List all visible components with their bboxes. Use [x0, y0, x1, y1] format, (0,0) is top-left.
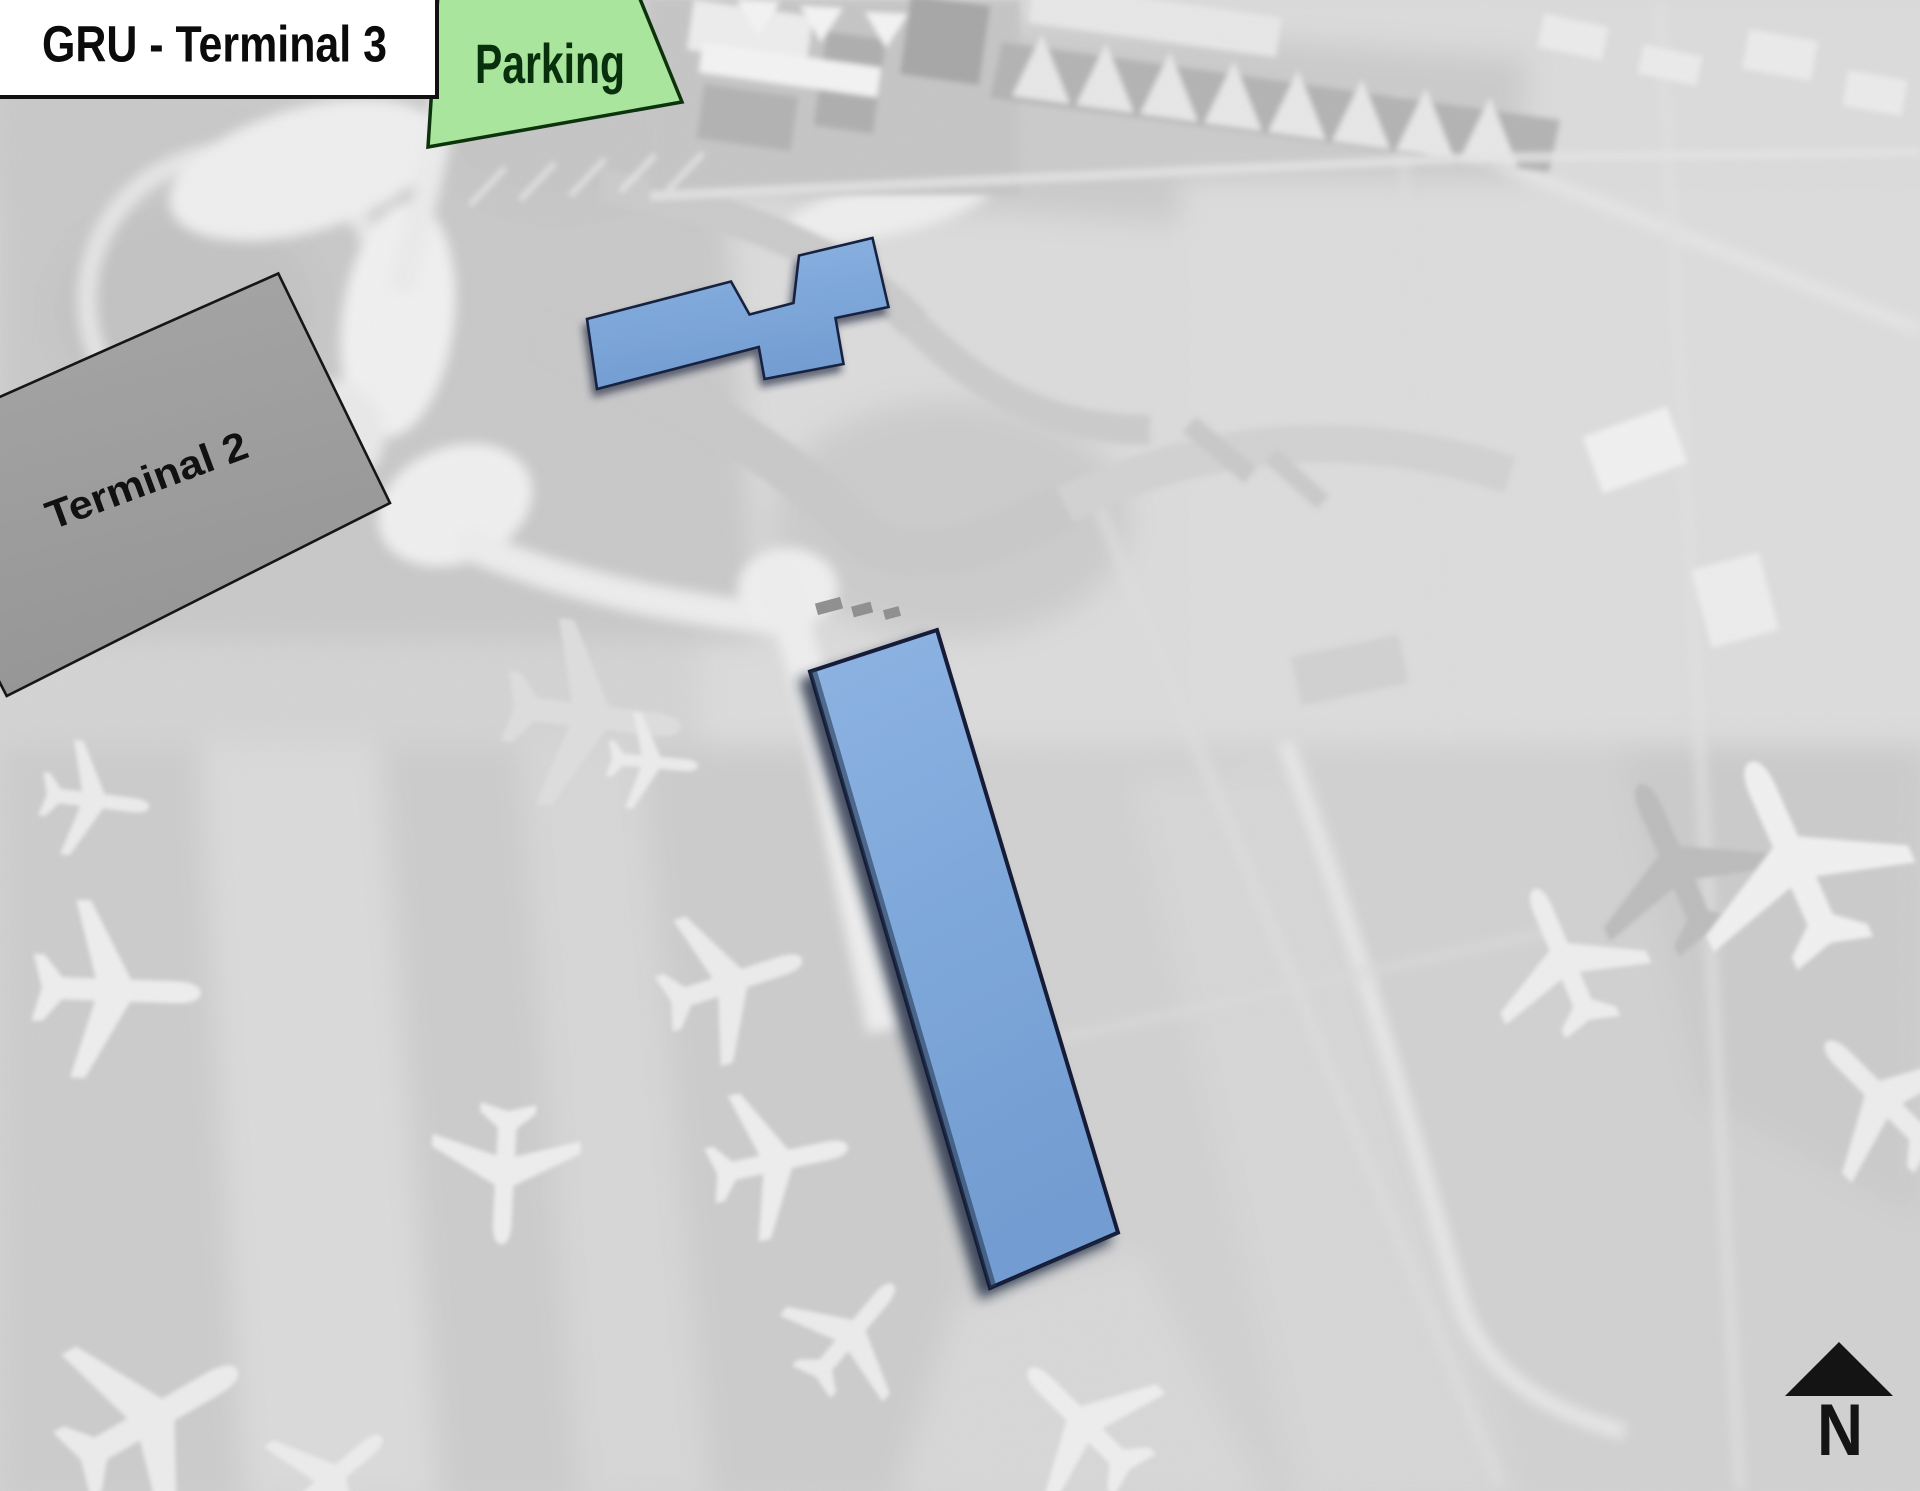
svg-text:GRU - Terminal 3: GRU - Terminal 3 — [42, 16, 387, 73]
svg-text:Parking: Parking — [475, 32, 625, 95]
svg-text:N: N — [1817, 1390, 1863, 1471]
